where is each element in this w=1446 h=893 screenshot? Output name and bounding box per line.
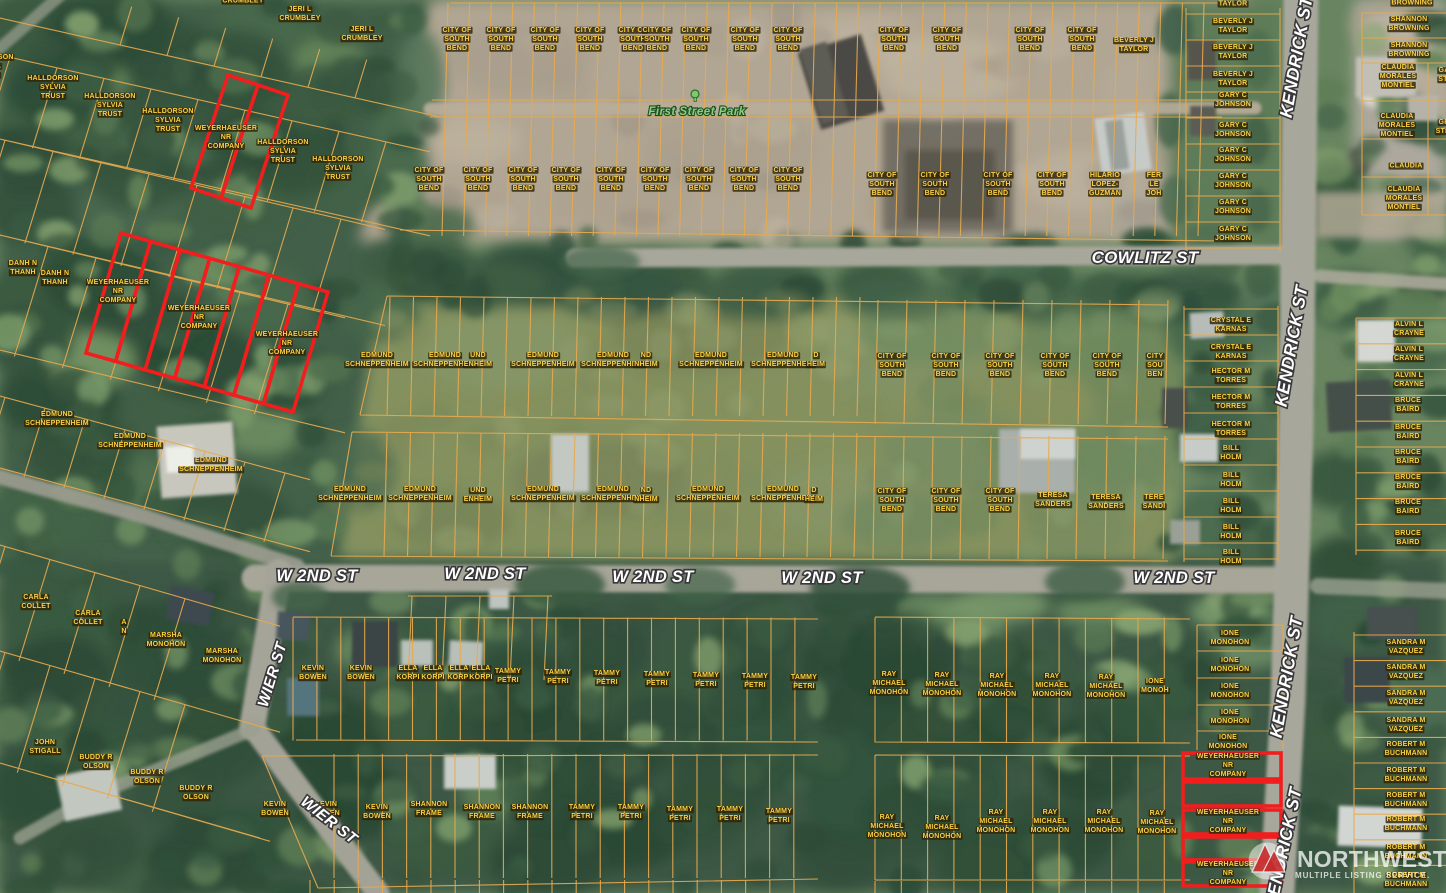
svg-text:WIER ST: WIER ST	[255, 639, 291, 709]
svg-text:NORTHWEST: NORTHWEST	[1297, 846, 1446, 872]
svg-text:W 2ND ST: W 2ND ST	[612, 568, 695, 586]
svg-text:KENDRICK ST: KENDRICK ST	[1266, 614, 1307, 739]
svg-text:MULTIPLE LISTING SERVICE.: MULTIPLE LISTING SERVICE.	[1295, 871, 1430, 880]
svg-text:W 2ND ST: W 2ND ST	[781, 569, 864, 587]
svg-text:COWLITZ ST: COWLITZ ST	[1092, 248, 1200, 267]
svg-text:KENDRICK ST: KENDRICK ST	[1276, 0, 1317, 119]
svg-text:KENDRICK ST: KENDRICK ST	[1271, 283, 1312, 408]
svg-text:W 2ND ST: W 2ND ST	[276, 567, 359, 585]
svg-text:WIER ST: WIER ST	[297, 793, 361, 848]
svg-text:W 2ND ST: W 2ND ST	[1133, 569, 1216, 587]
svg-text:W 2ND ST: W 2ND ST	[444, 565, 527, 583]
